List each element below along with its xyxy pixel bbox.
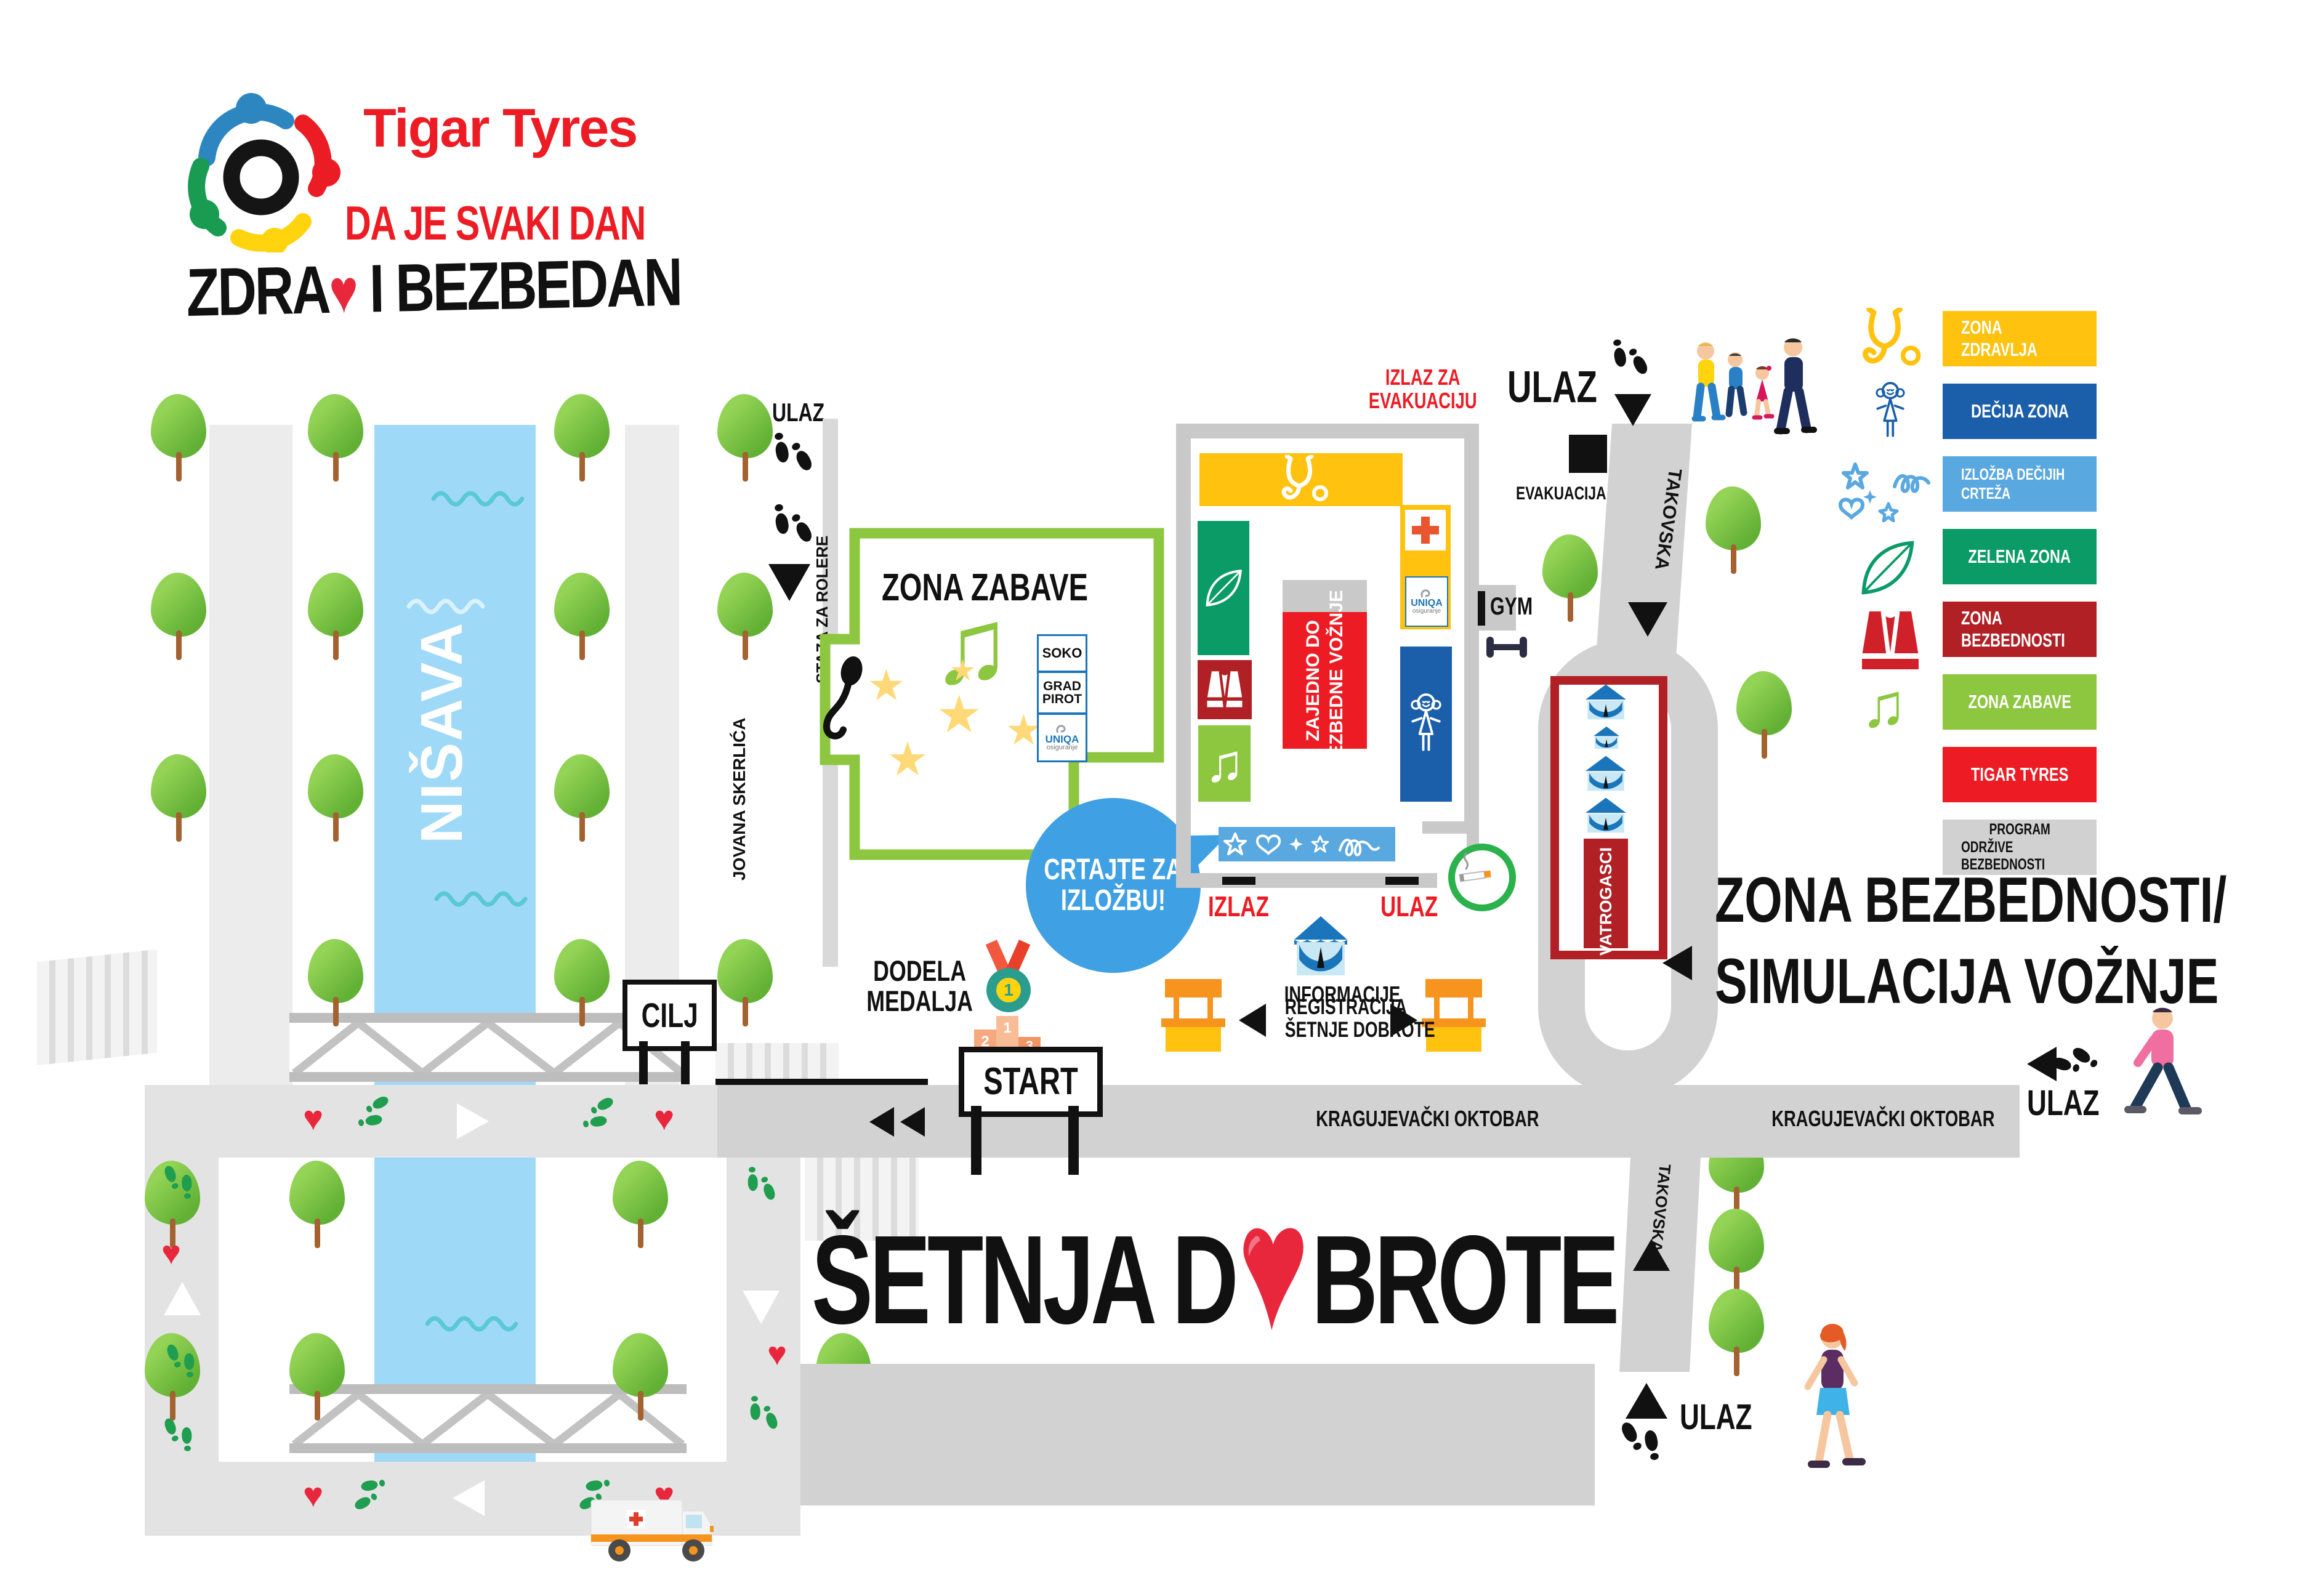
tree-icon <box>613 1333 668 1421</box>
road-arrow-down-icon <box>1628 602 1667 637</box>
wave-icon <box>425 1312 530 1334</box>
smoking-area-icon <box>1448 844 1516 911</box>
legend-item-zelena-zona: ZELENA ZONA <box>1943 529 2097 584</box>
title-heart-icon <box>1238 1218 1308 1341</box>
tree-icon <box>717 939 773 1026</box>
firefighters-banner: VATROGASCI <box>1584 839 1628 948</box>
tree-icon <box>151 394 206 482</box>
legend-item-zona-bezbednosti: ZONA BEZBEDNOSTI <box>1943 602 2097 657</box>
legend-item-zona-zabave: ZONA ZABAVE <box>1943 674 2097 730</box>
tree-icon <box>151 573 206 660</box>
cilj-sign-leg <box>639 1041 648 1084</box>
music-note-icon: ♫ <box>1861 675 1907 736</box>
kids-zone-bar <box>1400 647 1452 802</box>
uniqa-box: UNIQA osiguranje <box>1405 576 1448 627</box>
speech-bubble: CRTAJTE ZA IZLOŽBU! <box>1026 798 1201 973</box>
legend-item-decija-zona: DEČIJA ZONA <box>1943 384 2097 439</box>
route-arrow-right-icon <box>457 1103 489 1139</box>
red-cross-icon <box>1412 517 1439 544</box>
medal-ceremony-label: DODELA MEDALJA <box>866 956 973 1017</box>
fun-zone-box: ♫ <box>1198 725 1251 802</box>
tree-icon <box>308 939 363 1026</box>
legend-item-program: PROGRAM ODRŽIVE BEZBEDNOSTI <box>1943 820 2097 875</box>
green-zone-bar <box>1198 521 1249 655</box>
star-doodle-icon <box>1223 832 1247 856</box>
route-arrow-up-icon <box>164 1282 201 1315</box>
leaf-icon <box>1203 565 1244 611</box>
building-wall-jog <box>1422 821 1479 834</box>
registration-label: REGISTRACIJA ŠETNJE DOBROTE <box>1285 996 1374 1042</box>
family-walking-illustration <box>1687 337 1823 491</box>
first-aid-box <box>1405 510 1446 550</box>
evacuation-label: EVAKUACIJA <box>1516 484 1606 504</box>
park-entrance-label: ULAZ <box>772 399 824 426</box>
road-arrow-left-icon <box>900 1107 925 1137</box>
wave-icon <box>434 887 539 909</box>
registration-booth-icon <box>1161 979 1225 1052</box>
sponsor-uniqa: UNIQA osiguranje <box>1037 713 1087 762</box>
street-label-kragujevacki: KRAGUJEVAČKI OKTOBAR <box>1771 1107 1994 1130</box>
health-zone-bar <box>1199 453 1403 506</box>
fire-zone-tent-icon <box>1584 755 1628 795</box>
footprints-icon <box>1620 1414 1667 1470</box>
campaign-banner: ZAJEDNO DO BEZBEDNE VOŽNJE <box>1283 612 1367 749</box>
legend-item-zona-zdravlja: ZONA ZDRAVLJA <box>1943 311 2097 366</box>
river-name: NIŠAVA <box>411 634 473 844</box>
tree-icon <box>554 573 610 660</box>
dumbbell-icon <box>1483 634 1531 660</box>
star-icon: ★ <box>936 688 982 740</box>
cilj-sign-leg <box>681 1041 690 1084</box>
tree-icon <box>289 1161 345 1248</box>
legend-item-tigar-tyres: TIGAR TYRES <box>1943 747 2097 802</box>
north-entrance-label: ULAZ <box>1507 365 1597 411</box>
girl-doodle-icon <box>1863 379 1918 444</box>
safety-zone-title-line1: ZONA BEZBEDNOSTI/ <box>1715 867 2226 934</box>
tree-icon <box>308 754 363 842</box>
fire-zone-tent-icon <box>1584 797 1628 837</box>
river <box>374 425 536 1506</box>
footprints-icon <box>767 495 813 551</box>
cilj-sign: CILJ <box>623 980 717 1051</box>
uniqa-swirl-icon <box>1420 589 1433 598</box>
route-arrow-left-icon <box>453 1480 485 1516</box>
tree-icon <box>717 394 773 482</box>
tree-icon <box>613 1161 668 1248</box>
tree-icon <box>308 394 363 482</box>
sparkle-doodle-icon <box>1289 837 1303 851</box>
footprints-icon <box>2050 1038 2103 1084</box>
stethoscope-icon <box>1844 307 1930 371</box>
building-exit-label: IZLAZ <box>1208 892 1269 921</box>
tigar-tyres-logo <box>182 85 344 252</box>
firefighters-label: VATROGASCI <box>1597 847 1614 956</box>
doodles-icon <box>1838 461 1943 522</box>
stairs <box>715 1043 839 1081</box>
east-entrance-label: ULAZ <box>2027 1085 2100 1122</box>
footprints-icon <box>767 424 813 480</box>
safety-zone-box <box>1198 660 1252 719</box>
gym-label: GYM <box>1490 594 1533 619</box>
wave-icon <box>406 594 499 616</box>
brand-tagline-line2: ZDRA♥ I BEZBEDAN <box>186 246 681 328</box>
event-title-part2: BROTE <box>1312 1217 1616 1343</box>
registration-arrow-left-icon <box>1239 1004 1266 1037</box>
girl-doodle-icon <box>1406 690 1446 758</box>
sponsor-soko: SOKO <box>1037 634 1087 672</box>
loop-arrow-left-icon <box>1662 946 1692 980</box>
gym-marker <box>1478 591 1485 626</box>
fire-zone-tent-icon <box>1584 683 1628 723</box>
start-sign-leg <box>1068 1106 1079 1175</box>
south-entrance-label: ULAZ <box>1680 1399 1752 1437</box>
info-tent-icon <box>1292 915 1350 978</box>
road-edge-line <box>715 1079 928 1085</box>
building-wall-left <box>1176 424 1191 888</box>
uniqa-swirl-icon <box>1055 724 1069 734</box>
tree-icon <box>717 573 773 660</box>
heart-icon: ♥ <box>303 1101 323 1135</box>
star-doodle-icon <box>1311 835 1329 853</box>
tree-icon <box>1706 486 1761 574</box>
entrance-arrow-up-icon <box>1626 1383 1667 1419</box>
start-label: START <box>983 1062 1078 1102</box>
start-sign-leg <box>971 1106 981 1175</box>
building-door-gap <box>1222 877 1255 885</box>
safety-zone-title-line2: SIMULACIJA VOŽNJE <box>1715 948 2218 1015</box>
leaf-icon <box>1847 537 1927 598</box>
tree-icon <box>554 394 610 482</box>
ambulance-icon <box>584 1489 722 1569</box>
entrance-arrow-down-icon <box>1614 394 1651 426</box>
music-note-icon: ♫ <box>1204 737 1244 790</box>
heart-icon: ♥ <box>329 257 357 326</box>
park-path-left <box>209 425 292 1085</box>
street-label-jovana-skerlica: JOVANA SKERLIĆA <box>730 733 748 881</box>
star-icon: ★ <box>867 664 906 707</box>
entrance-arrow-down-icon <box>768 564 810 601</box>
star-icon: ★ <box>887 736 929 783</box>
squiggle-doodle-icon <box>1337 832 1392 856</box>
event-map-poster: NIŠAVA ♥ <box>0 0 2309 1596</box>
road-arrow-left-icon <box>869 1107 894 1137</box>
legend-item-izlozba: IZLOŽBA DEČIJIH CRTEŽA <box>1943 456 2097 512</box>
tree-icon <box>289 1333 345 1421</box>
star-icon: ★ <box>949 656 976 686</box>
route-arrow-down-icon <box>743 1291 780 1324</box>
tree-icon <box>554 939 610 1026</box>
event-title: ŠETNJA DBROTE <box>812 1212 1914 1347</box>
evacuation-point-marker <box>1569 435 1607 473</box>
heart-icon: ♥ <box>161 1236 181 1270</box>
street-label-kragujevacki: KRAGUJEVAČKI OKTOBAR <box>1316 1107 1539 1130</box>
heart-doodle-icon <box>1255 833 1281 855</box>
evacuation-exit-label: IZLAZ ZA EVAKUACIJU <box>1369 366 1477 413</box>
building-entrance-label: ULAZ <box>1380 892 1438 921</box>
brand-tagline-line1: DA JE SVAKI DAN <box>345 198 645 249</box>
banner-pole <box>1283 580 1367 612</box>
footprints-icon <box>1606 331 1649 382</box>
tree-icon <box>1736 671 1792 759</box>
building-door-gap <box>1385 877 1419 885</box>
medal-icon: 1 <box>983 941 1034 1018</box>
tree-icon <box>308 573 363 660</box>
sponsor-grad-pirot: GRAD PIROT <box>1037 671 1087 714</box>
heart-icon: ♥ <box>654 1101 674 1135</box>
heart-icon: ♥ <box>303 1478 323 1512</box>
heart-icon: ♥ <box>767 1337 787 1371</box>
event-title-part1: ŠETNJA D <box>812 1217 1235 1343</box>
stethoscope-icon <box>1272 455 1331 504</box>
fire-zone-tent-icon <box>1592 725 1621 753</box>
man-walking-illustration <box>2113 1004 2212 1151</box>
title-underline-block <box>800 1364 1595 1505</box>
tree-icon <box>151 754 206 842</box>
stairs <box>37 949 157 1065</box>
safety-vest-icon <box>1856 608 1924 674</box>
exhibit-bar <box>1219 827 1395 861</box>
cilj-label: CILJ <box>641 997 698 1034</box>
safety-vest-icon <box>1206 670 1244 709</box>
tree-icon <box>554 754 610 842</box>
wave-icon <box>431 486 536 509</box>
company-name: Tigar Tyres <box>363 100 637 156</box>
sponsor-soko-label: SOKO <box>1042 647 1082 660</box>
building-wall-top <box>1176 424 1479 438</box>
